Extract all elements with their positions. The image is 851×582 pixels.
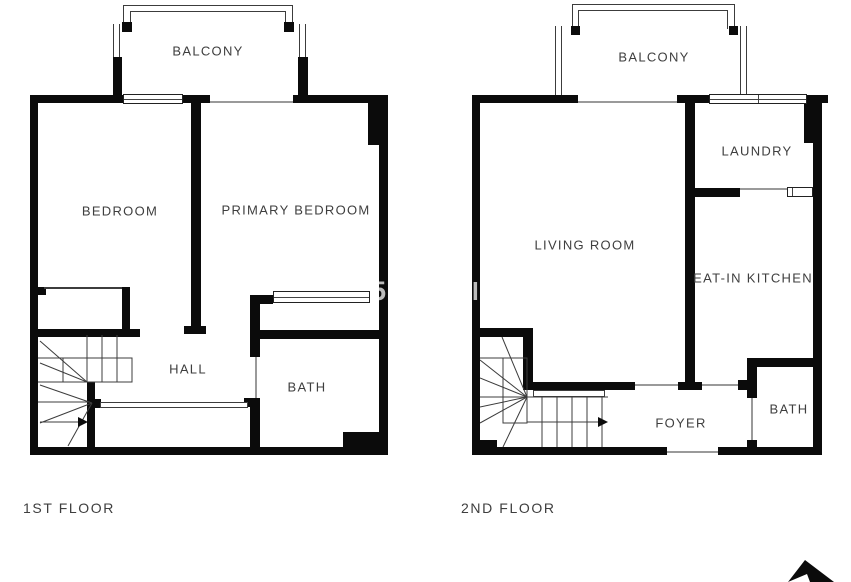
bath-left-wall-upper — [747, 358, 757, 398]
bath-corner-block — [343, 432, 388, 455]
appliance-divider — [792, 188, 793, 196]
living-kitchen-wall — [685, 95, 695, 382]
staircase-icon — [480, 330, 610, 447]
room-label-foyer: FOYER — [655, 416, 706, 431]
balcony-opening-threshold — [578, 101, 677, 103]
window-divider — [758, 95, 759, 103]
window-mullion — [124, 99, 182, 100]
room-label-bath: BATH — [288, 380, 327, 395]
wall-bedroom-divider — [191, 103, 201, 327]
closet-opening-line — [44, 287, 122, 289]
room-label-eat-in-kitchen: EAT-IN KITCHEN — [693, 271, 813, 286]
balcony-corner-block — [122, 22, 132, 32]
stair-arrow-icon — [598, 417, 608, 427]
wall-top-left — [472, 95, 578, 103]
room-label-laundry: LAUNDRY — [722, 144, 793, 159]
hall-bath-wall-upper — [250, 295, 260, 357]
room-label-hall: HALL — [169, 362, 207, 377]
wall-right-pilaster — [368, 97, 379, 145]
floor-plan-canvas: BALCONY BEDROOM PRIMARY BEDROOM HALL BAT… — [0, 0, 851, 582]
balcony-side-rail — [113, 24, 120, 57]
staircase-icon — [38, 333, 135, 447]
balcony-side-rail — [740, 26, 747, 95]
room-label-living-room: LIVING ROOM — [535, 238, 636, 253]
laundry-bottom-wall — [685, 188, 740, 197]
watermark-fragment: el — [458, 278, 479, 307]
wall-right — [813, 95, 822, 455]
closet-slider-icon — [273, 291, 370, 303]
bath-top-wall — [260, 330, 379, 339]
balcony-side-rail — [555, 26, 562, 95]
balcony-wall-stub — [298, 57, 308, 97]
living-kitchen-wall-cap — [678, 382, 702, 390]
wall-right — [379, 95, 388, 455]
balcony-corner-block — [729, 26, 738, 35]
balcony-wall-stub — [113, 57, 122, 97]
room-label-bath: BATH — [770, 402, 809, 417]
bath-door-opening — [751, 398, 753, 440]
bath-top-wall — [747, 358, 822, 367]
balcony-corner-block — [284, 22, 294, 32]
window-icon — [709, 94, 807, 104]
hall-bath-wall-stub — [260, 295, 273, 304]
balcony-side-rail — [299, 24, 306, 57]
wall-bottom-left — [472, 447, 667, 455]
balcony-opening-threshold — [210, 101, 293, 103]
wall-left — [30, 95, 38, 455]
room-label-balcony: BALCONY — [172, 44, 243, 59]
window-icon — [123, 94, 183, 104]
balcony-rail-inner — [130, 11, 286, 28]
bath-door-opening — [255, 357, 257, 398]
wall-left — [472, 95, 480, 455]
balcony-rail-inner — [578, 10, 728, 29]
floor-label-first: 1ST FLOOR — [23, 500, 115, 516]
room-label-balcony: BALCONY — [618, 50, 689, 65]
living-foyer-threshold — [635, 384, 678, 386]
wall-top-left — [30, 95, 210, 103]
kitchen-foyer-threshold — [702, 384, 738, 386]
room-label-primary-bedroom: PRIMARY BEDROOM — [221, 203, 370, 218]
watermark-fragment: 5 — [371, 276, 386, 307]
north-arrow-icon — [788, 558, 836, 582]
foyer-corner-stub — [738, 380, 757, 390]
wall-bottom — [30, 447, 388, 455]
entry-opening-threshold — [667, 451, 718, 453]
floor-label-second: 2ND FLOOR — [461, 500, 556, 516]
laundry-opening-threshold — [740, 188, 787, 190]
wall-bedroom-divider-cap — [184, 326, 206, 334]
wall-bottom-right — [718, 447, 822, 455]
balcony-corner-block — [571, 26, 580, 35]
appliance-icon — [787, 187, 813, 197]
closet-slider-line — [274, 297, 369, 298]
bath-left-wall-lower — [747, 440, 757, 455]
room-label-bedroom: BEDROOM — [82, 204, 158, 219]
